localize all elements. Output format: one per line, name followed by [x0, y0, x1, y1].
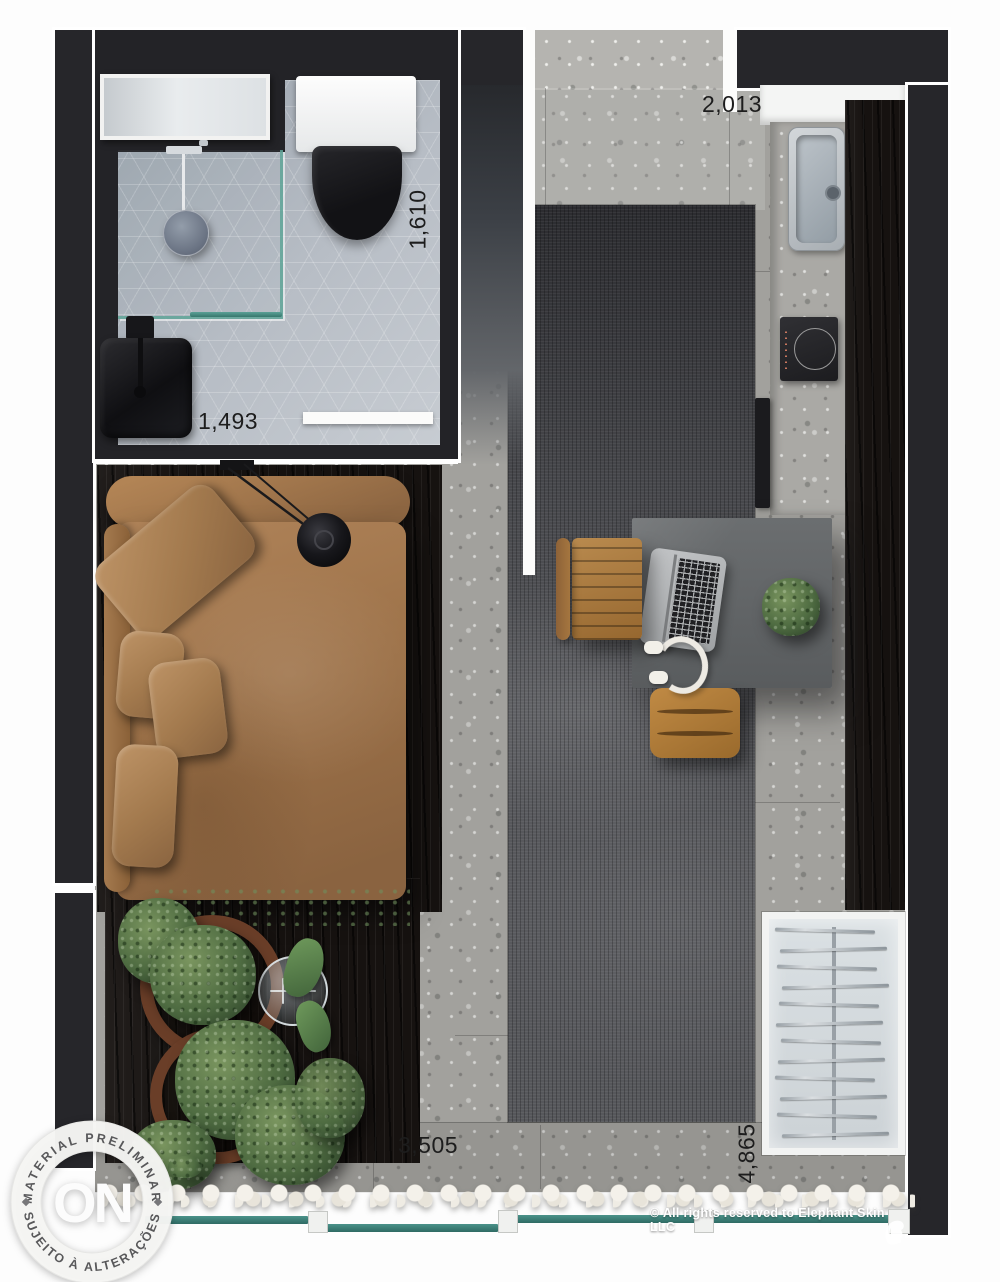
floor-joint [540, 1125, 541, 1189]
stamp: MATERIAL PRELIMINAR SUJEITO À ALTERAÇÕES… [10, 1120, 174, 1282]
elephant-logo-icon [882, 1214, 906, 1246]
hanger-bar [781, 1039, 881, 1045]
hanger-bar [780, 1094, 887, 1100]
cabinet-handle [755, 398, 770, 508]
window-mullion [308, 1211, 328, 1233]
chair-backrest [556, 538, 570, 640]
shower-head [163, 210, 209, 256]
wall-lamp [210, 450, 360, 570]
right-wall [908, 85, 948, 1235]
bathroom-faucet-spout [138, 338, 143, 390]
window-mullion [498, 1210, 518, 1233]
cooktop-burner [794, 328, 836, 370]
entry-floor [535, 30, 723, 90]
kitchen-sink-drain [825, 185, 841, 201]
bathroom-faucet-tip [134, 386, 146, 398]
stool [650, 688, 740, 758]
wardrobe [762, 912, 905, 1155]
headphones-earpad [644, 641, 663, 654]
desk-plant [762, 578, 820, 636]
pillow [111, 743, 179, 868]
hanger-bar [782, 983, 889, 989]
dimension-label-entry: 2,013 [702, 91, 762, 118]
dimension-label-living-depth: 4,865 [734, 1107, 761, 1201]
hanger-bar [777, 965, 877, 971]
shower-valve [166, 146, 202, 154]
pillow [146, 656, 229, 760]
kitchen-wood-panel [845, 100, 905, 910]
cooktop [780, 317, 838, 381]
hanger-bar [777, 1113, 877, 1119]
cooktop-controls [785, 329, 787, 369]
hanger-bar [778, 1057, 885, 1063]
dimension-label-bath-width: 1,493 [198, 408, 258, 435]
floor-joint [455, 1035, 508, 1036]
lamp-shade [297, 513, 351, 567]
hanger-bar [775, 928, 875, 934]
laptop-keyboard [667, 558, 720, 645]
dining-chair [572, 538, 642, 640]
hanger-bar [780, 946, 887, 952]
bathroom-shadow-strip [455, 85, 523, 465]
shower-glass-door [190, 312, 282, 317]
headphones-earpad [649, 671, 668, 684]
floor-plan-render: 2,013 1,610 1,493 3,505 4,865 © All righ… [0, 0, 1000, 1282]
wardrobe-hangers [773, 929, 894, 1142]
shower-knob [199, 140, 208, 146]
bathroom-sink [100, 338, 192, 438]
hanger-bar [776, 1020, 883, 1026]
stamp-logo: ON [53, 1171, 131, 1234]
kitchen-sink [788, 127, 845, 251]
bathroom-shelf-niche [100, 74, 270, 140]
top-wall-left-of-door [455, 30, 523, 85]
left-wall-upper [55, 30, 93, 883]
bathroom-faucet [126, 316, 154, 340]
potted-plant [150, 925, 256, 1025]
bathroom-door-threshold [303, 412, 433, 424]
copyright-text: © All rights reserved to Elephant Skin L… [650, 1206, 890, 1234]
dimension-label-living-width: 3,505 [398, 1132, 458, 1159]
toilet-tank [296, 76, 416, 152]
floor-joint [755, 802, 840, 803]
headphones [642, 634, 704, 690]
floor-joint [545, 88, 546, 208]
door-jamb-left [523, 30, 535, 575]
trailing-vine [295, 1058, 365, 1138]
hanger-bar [782, 1131, 889, 1137]
hanger-bar [779, 1002, 879, 1008]
window-glass [326, 1224, 498, 1232]
top-wall-right-of-door [737, 30, 948, 88]
hanger-bar [775, 1076, 875, 1082]
dimension-label-bath-depth: 1,610 [405, 174, 432, 266]
